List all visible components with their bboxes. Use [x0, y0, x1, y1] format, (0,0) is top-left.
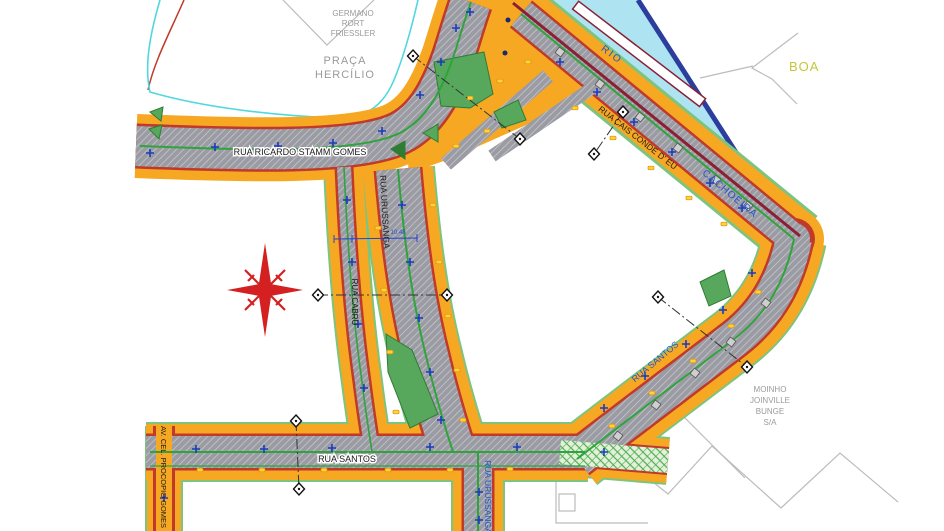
- quay-bollard-1: [506, 18, 511, 23]
- praca-label-line2: HERCÍLIO: [315, 68, 375, 81]
- street-label-rua-santos-h: RUA SANTOS: [318, 454, 376, 464]
- plaza-island-large: [434, 52, 493, 108]
- site-plan-map: 10.48 PRAÇA HERCÍLIO GERMANO RORT FRIESS…: [0, 0, 944, 531]
- dimension-value: 10.48: [390, 230, 406, 236]
- moinho-label-line4: S/A: [764, 418, 778, 427]
- moinho-label-line2: JOINVILLE: [750, 396, 790, 405]
- boa-label: BOA: [789, 59, 819, 74]
- moinho-label-line1: MOINHO: [754, 385, 787, 394]
- germano-label-line3: FRIESSLER: [331, 29, 376, 38]
- praca-label-line1: PRAÇA: [324, 55, 367, 67]
- street-label-rua-cabru: RUA CABRU: [350, 279, 359, 326]
- street-label-av-procopio-gomes: AV. CEL. PROCOPIO GOMES: [159, 426, 168, 528]
- street-label-rua-ricardo-stamm-gomes: RUA RICARDO STAMM GOMES: [234, 147, 367, 157]
- germano-label-line1: GERMANO: [332, 9, 373, 18]
- quay-bollard-2: [503, 51, 508, 56]
- street-label-rua-urussanga-bottom: RUA URUSSANGA: [483, 460, 493, 531]
- germano-label-line2: RORT: [342, 19, 365, 28]
- moinho-label-line3: BUNGE: [756, 407, 784, 416]
